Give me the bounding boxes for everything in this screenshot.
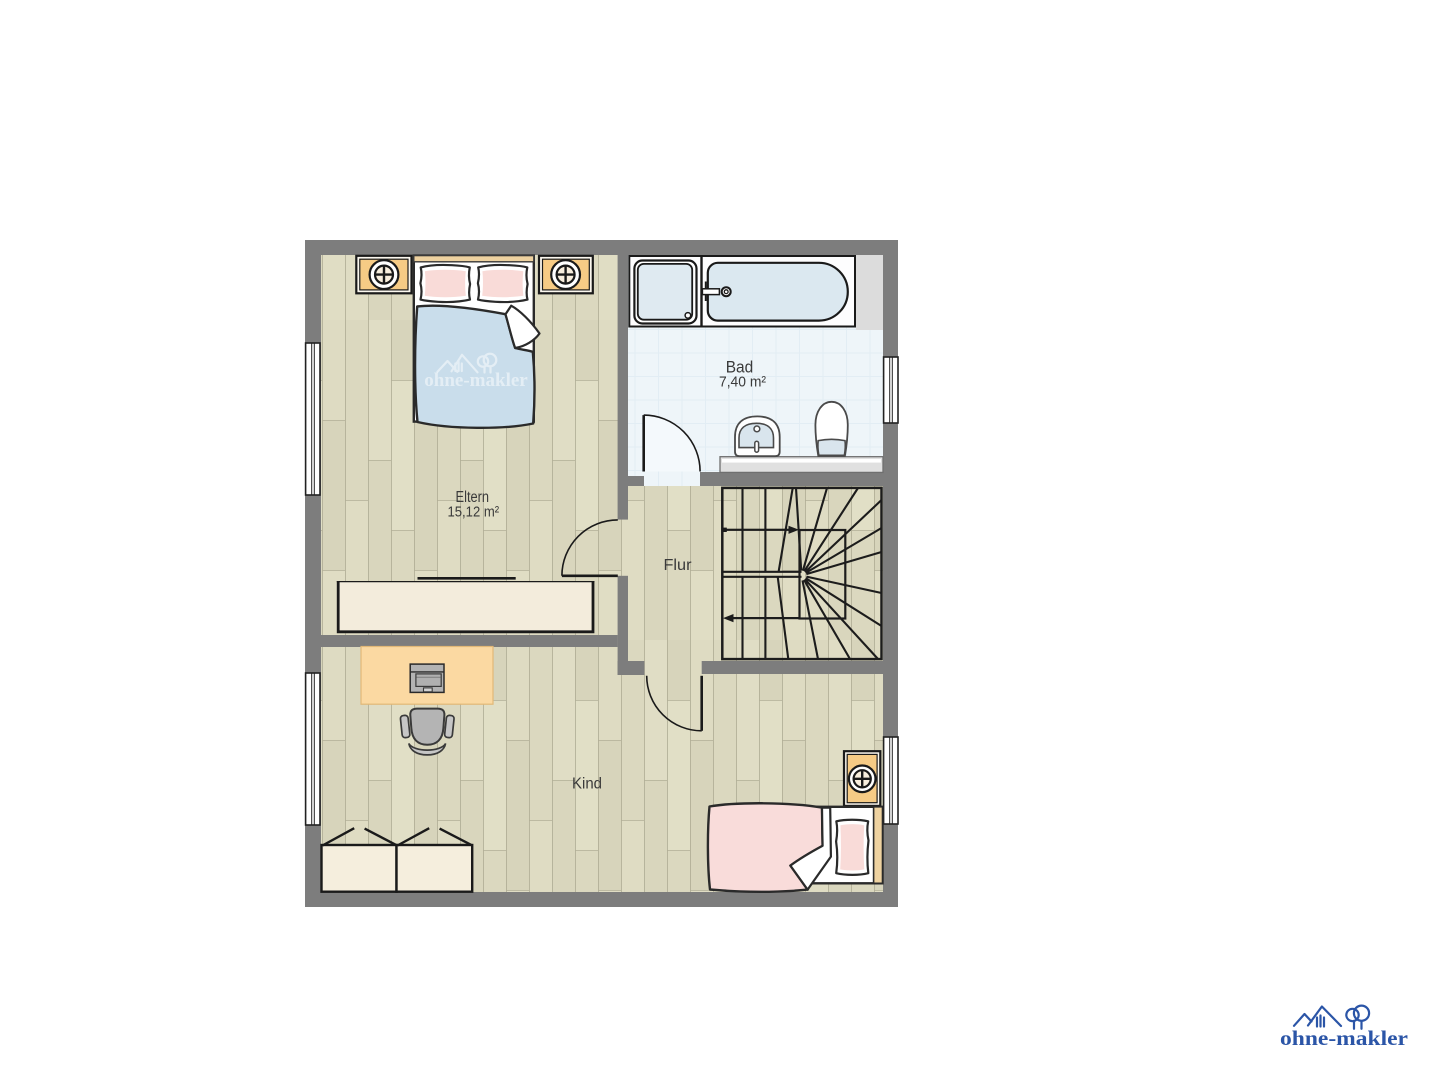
svg-text:7,40 m²: 7,40 m²: [719, 374, 766, 391]
svg-text:ohne-makler: ohne-makler: [1280, 1026, 1408, 1050]
svg-text:ohne-makler: ohne-makler: [424, 370, 528, 391]
svg-text:Flur: Flur: [664, 557, 692, 574]
svg-text:15,12 m²: 15,12 m²: [448, 504, 500, 521]
svg-text:Kind: Kind: [572, 775, 602, 792]
